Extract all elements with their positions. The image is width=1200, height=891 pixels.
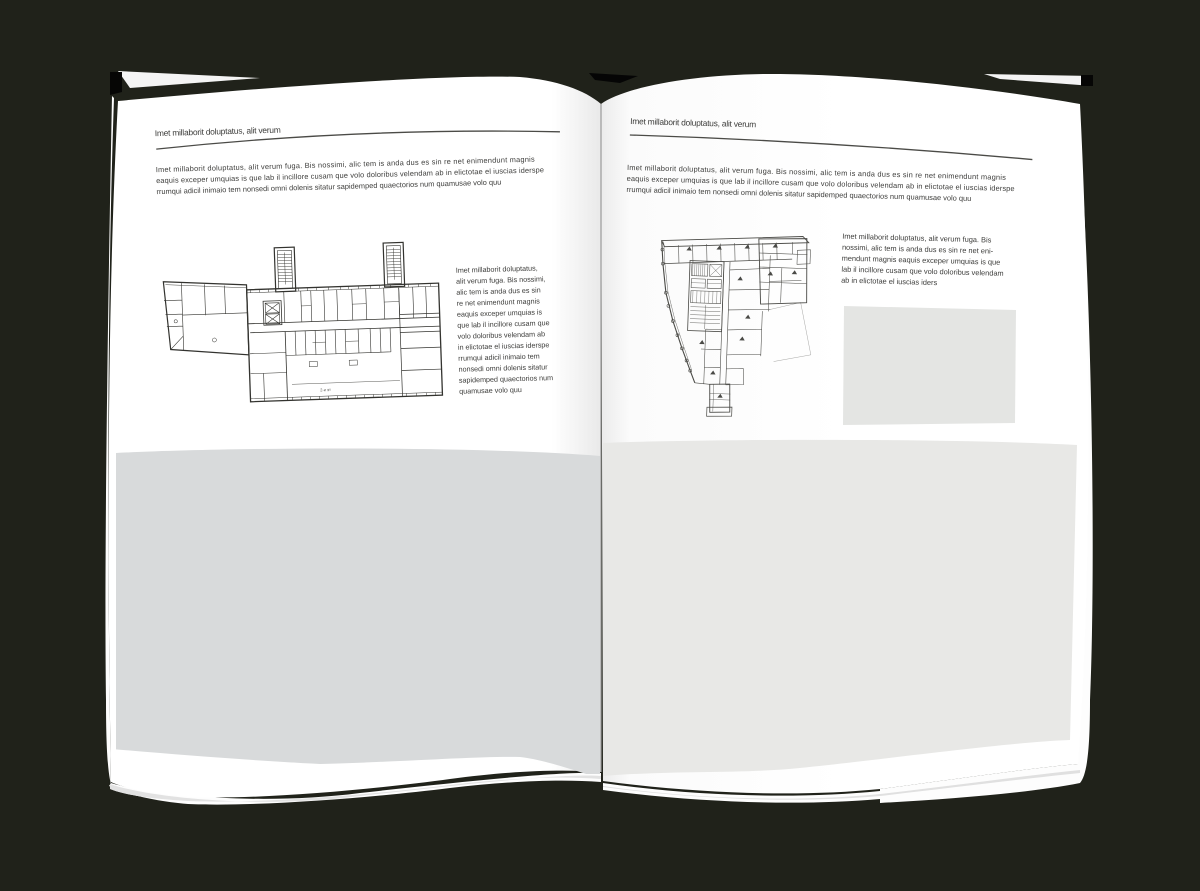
svg-text:2-и эт: 2-и эт (320, 387, 331, 392)
svg-text:quamusae volo quu: quamusae volo quu (459, 385, 522, 396)
